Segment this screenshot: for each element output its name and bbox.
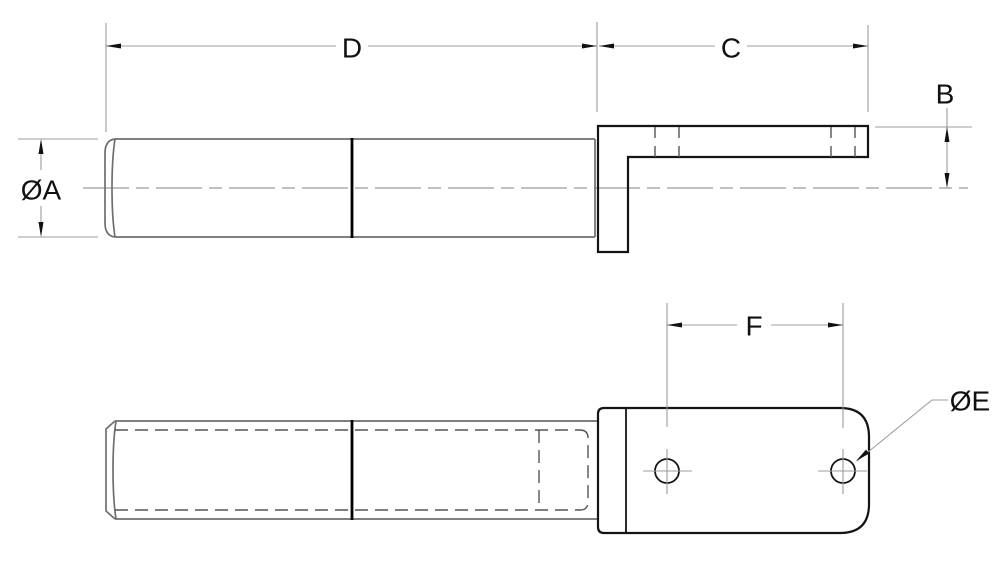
dimension-f: F <box>667 303 843 428</box>
callout-dia-e: ØE <box>856 386 990 462</box>
dim-label-d: D <box>342 33 362 64</box>
arrowhead <box>856 450 869 461</box>
dim-label-b: B <box>936 79 955 110</box>
dim-label-f: F <box>745 311 762 342</box>
dim-label-dia-a: ØA <box>21 175 62 206</box>
dim-label-c: C <box>721 33 741 64</box>
arrowhead <box>582 44 597 49</box>
hole-crosshairs <box>643 449 867 494</box>
plan-view: F ØE <box>106 303 990 533</box>
flange-hole-hidden-lines <box>655 127 855 157</box>
arrowhead <box>39 222 44 237</box>
arrowhead <box>945 173 950 188</box>
bracket-side-outline <box>598 126 868 252</box>
arrowhead <box>945 127 950 142</box>
dimension-d: D <box>106 22 597 132</box>
arrowhead <box>106 44 121 49</box>
arrowhead <box>828 323 843 328</box>
arrowhead <box>39 139 44 154</box>
technical-drawing: D C ØA B <box>0 0 1000 563</box>
drawing-canvas: D C ØA B <box>0 0 1000 563</box>
dim-label-dia-e: ØE <box>950 386 990 417</box>
side-view: D C ØA B <box>18 22 972 252</box>
arrowhead <box>853 44 868 49</box>
dimension-c: C <box>599 25 868 112</box>
arrowhead <box>599 44 614 49</box>
arrowhead <box>667 323 682 328</box>
dimension-b: B <box>875 79 972 189</box>
